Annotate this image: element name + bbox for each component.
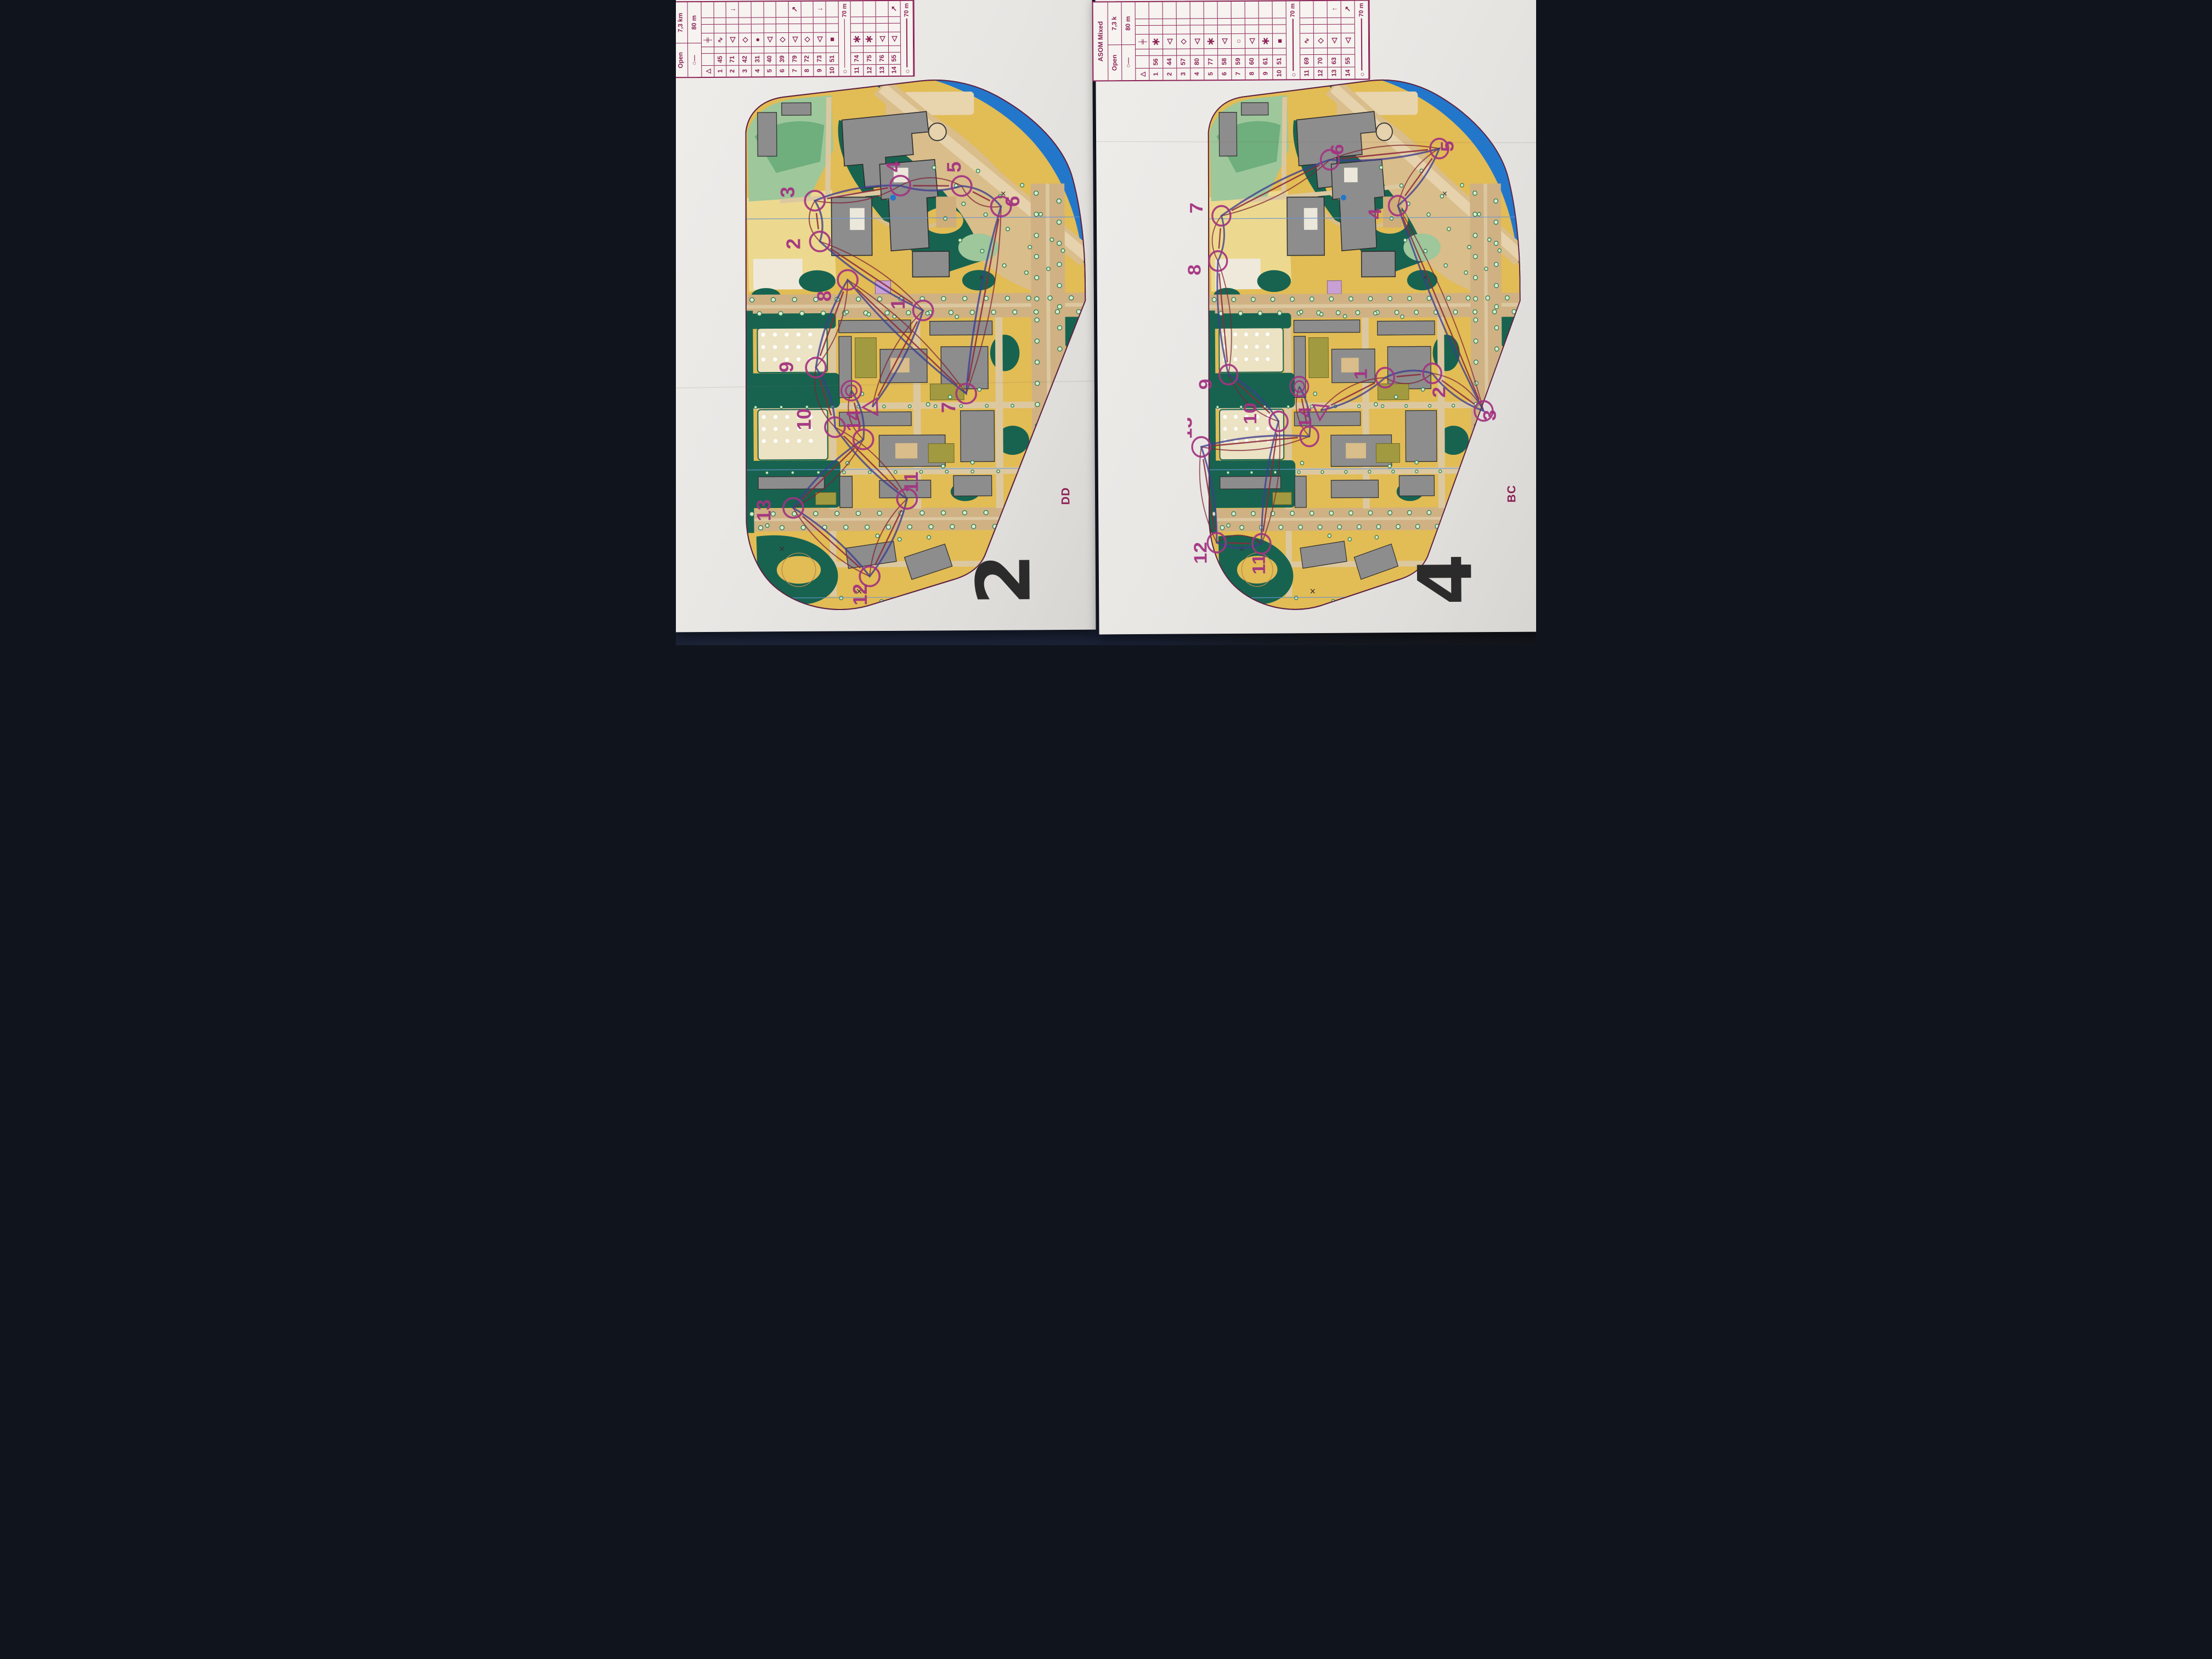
control-number-label: 13 [1185, 417, 1196, 439]
 [826, 46, 838, 53]
control-number-label: 14 [842, 409, 865, 431]
square-icon: ■ [1273, 33, 1286, 48]
taped-route-row: ○70 m [838, 1, 851, 76]
 [1204, 48, 1217, 55]
control-code: 74 [851, 52, 864, 64]
fence-icon: ╪ [1136, 34, 1149, 49]
 [714, 2, 726, 18]
control-code: 73 [814, 53, 826, 65]
 [726, 24, 738, 33]
diamond-icon: ◇ [1314, 33, 1327, 48]
description-row: 1455◁↗ [1341, 1, 1356, 79]
control-code: 56 [1149, 55, 1163, 67]
 [1190, 2, 1204, 18]
control-number: 5 [1204, 67, 1217, 80]
control-number-label: 4 [1365, 208, 1386, 219]
 [764, 24, 776, 32]
 [1149, 2, 1163, 19]
course-length: 7,3 km [676, 2, 687, 43]
description-row: 1376◁ [876, 1, 889, 76]
 [1190, 25, 1204, 34]
 [789, 24, 801, 32]
 [1177, 48, 1190, 55]
finish-route-row: ○70 m [901, 1, 914, 76]
control-number: 14 [889, 64, 901, 76]
control-code: 80 [1190, 55, 1204, 67]
 [726, 47, 738, 53]
 [888, 16, 900, 23]
description-row: 271◁↓ [726, 2, 740, 77]
 [776, 2, 788, 17]
control-number: 14 [1341, 66, 1355, 78]
triangle-icon: ◁ [726, 32, 738, 47]
 [1232, 2, 1245, 18]
 [752, 17, 764, 24]
arrow-down-icon: ↓ [814, 2, 826, 17]
control-number: 1 [714, 65, 726, 77]
description-row: 860◁ [1245, 2, 1260, 80]
control-number-label: 6 [1001, 196, 1024, 207]
control-number-label: 12 [849, 584, 871, 606]
description-row: 639◇ [776, 2, 789, 76]
 [1259, 48, 1272, 55]
control-number: 9 [1259, 67, 1272, 79]
 [1218, 48, 1231, 55]
control-code: 75 [864, 52, 876, 64]
control-number: 10 [1273, 67, 1286, 79]
 [739, 18, 751, 24]
 [876, 46, 888, 52]
course-length: 7,3 k [1108, 2, 1121, 44]
control-number-label: 9 [1196, 379, 1216, 390]
 [789, 46, 801, 53]
photo-of-orienteering-maps: 1234567891011121314 Open7,3 km○—80 m△╪14… [676, 0, 1536, 645]
 [1163, 49, 1176, 56]
route-distance: 70 m [1358, 3, 1365, 16]
triangle-icon: ◁ [814, 32, 826, 47]
control-code: 51 [1273, 55, 1286, 67]
 [1259, 18, 1272, 25]
control-number: 4 [1190, 67, 1204, 80]
 [1328, 24, 1341, 33]
control-number-label: 3 [776, 187, 799, 198]
description-row: 779◁↗ [788, 2, 802, 76]
 [1273, 24, 1286, 33]
 [1300, 18, 1313, 25]
control-number-label: 10 [793, 408, 815, 430]
 [1177, 2, 1190, 18]
control-description-sheet: Open7,3 km○—80 m△╪145∿271◁↓342◇431●540◁6… [676, 0, 915, 78]
description-row: 1174∗ [851, 1, 864, 76]
control-number-label: 5 [943, 161, 965, 172]
 [752, 24, 764, 32]
control-number: 2 [1163, 67, 1176, 80]
 [1328, 17, 1341, 24]
control-code: 61 [1259, 55, 1272, 67]
 [1218, 2, 1231, 18]
 [789, 17, 801, 24]
 [889, 46, 901, 52]
control-number: 2 [727, 65, 739, 77]
 [864, 16, 876, 23]
description-row: 357◇ [1177, 2, 1191, 80]
control-code: 70 [1314, 54, 1327, 66]
control-code: 76 [876, 52, 888, 64]
taped-route-row: ○70 m [1286, 1, 1301, 79]
control-code: 69 [1300, 54, 1313, 66]
orienteering-map-course-4: 1234567891011121314 [1185, 76, 1525, 624]
control-description-sheet: ASOM MixedOpen7,3 k○—80 m△╪156∗244◁357◇4… [1092, 0, 1370, 82]
triangle-icon: ◁ [1328, 33, 1341, 48]
event-title: ASOM Mixed [1093, 2, 1109, 80]
 [764, 47, 776, 53]
description-row: 1169∿ [1300, 1, 1314, 79]
control-number: 13 [876, 64, 888, 76]
description-row: △╪ [702, 2, 715, 77]
control-number-label: 2 [1429, 387, 1449, 398]
triangle-icon: ◁ [789, 32, 801, 47]
control-code: 57 [1177, 55, 1190, 67]
finish-route-row: ○70 m [1355, 1, 1369, 78]
control-number-label: 1 [887, 298, 909, 309]
arrow-upright-icon: ↗ [788, 2, 800, 17]
description-row: 1051■ [1273, 1, 1287, 79]
 [702, 2, 714, 18]
control-number-label: 9 [775, 362, 798, 373]
control-number-label: 7 [937, 402, 960, 413]
 [1163, 25, 1176, 34]
squiggle-icon: ∿ [714, 33, 726, 47]
class-name: Open [1108, 44, 1121, 80]
description-row: 973◁↓ [814, 2, 827, 76]
 [1328, 48, 1341, 55]
 [1341, 24, 1355, 33]
 [702, 18, 714, 24]
control-number-label: 13 [752, 499, 775, 521]
 [1273, 1, 1286, 18]
 [1136, 49, 1149, 56]
control-number-label: 14 [1295, 406, 1316, 428]
taped-route-icon: ○ [1289, 72, 1297, 77]
square-icon: ■ [826, 32, 838, 46]
star-icon: ∗ [1259, 33, 1272, 48]
 [739, 47, 751, 53]
course-climb: 80 m [688, 2, 701, 43]
arrow-down-icon: ↓ [726, 2, 738, 18]
control-number: 11 [1300, 67, 1313, 79]
control-number: 12 [1314, 67, 1327, 79]
control-number-label: 12 [1191, 542, 1211, 564]
taped-route-icon: ○ [840, 70, 849, 74]
 [864, 23, 876, 32]
course-climb: 80 m [1122, 2, 1135, 44]
 [1218, 18, 1231, 25]
finish-icon: ○ [1358, 72, 1366, 77]
control-code [702, 53, 714, 65]
orienteering-map-course-2: 1234567891011121314 [720, 76, 1091, 624]
 [1314, 48, 1327, 55]
 [1245, 48, 1259, 55]
description-row: 156∗ [1149, 2, 1164, 80]
 [1136, 2, 1149, 19]
triangle-icon: ◁ [764, 32, 776, 47]
control-code: 59 [1232, 55, 1245, 67]
triangle-icon: ◁ [1163, 34, 1176, 49]
 [726, 18, 738, 24]
control-code: 42 [739, 53, 751, 65]
 [1149, 25, 1163, 35]
 [1300, 24, 1313, 33]
diamond-icon: ◇ [802, 32, 814, 47]
triangle-icon: ◁ [1190, 34, 1204, 49]
 [1259, 24, 1272, 33]
 [1341, 17, 1355, 24]
 [1136, 25, 1149, 35]
control-code: 79 [789, 53, 801, 65]
 [826, 17, 838, 24]
route-distance: 70 m [841, 3, 848, 17]
control-code: 51 [826, 53, 838, 65]
description-row: 961∗ [1259, 1, 1273, 79]
control-code: 71 [727, 53, 739, 65]
map-sheet-course-4: 1234567891011121314 ASOM MixedOpen7,3 k○… [1095, 0, 1536, 634]
 [1314, 1, 1327, 18]
 [876, 1, 888, 16]
control-number-label: 11 [900, 472, 922, 493]
 [1163, 18, 1176, 25]
control-number: 13 [1328, 66, 1341, 78]
triangle-icon: ◁ [1218, 33, 1231, 48]
control-number: 5 [764, 65, 776, 77]
control-code: 31 [752, 53, 764, 65]
control-number: 3 [739, 65, 751, 77]
 [739, 24, 751, 32]
control-code [1136, 55, 1149, 67]
control-number: △ [1136, 68, 1149, 80]
arrow-upright-icon: ↗ [888, 1, 900, 16]
description-row: 1270◇ [1314, 1, 1328, 79]
 [1245, 2, 1259, 18]
start-circle-icon: ○— [688, 43, 701, 77]
 [1149, 49, 1163, 56]
 [826, 1, 838, 16]
star-icon: ∗ [864, 32, 876, 46]
control-code: 39 [776, 53, 788, 65]
 [1177, 18, 1190, 25]
control-number-label: 1 [1351, 369, 1372, 380]
description-row: 577∗ [1204, 2, 1218, 80]
start-circle-icon: ○— [1122, 44, 1135, 80]
course-label: BC [1505, 485, 1519, 503]
control-code: 77 [1204, 55, 1217, 67]
diamond-icon: ◇ [739, 32, 751, 47]
arrow-up-icon: ↑ [1328, 1, 1341, 18]
diamond-icon: ◇ [1177, 34, 1190, 49]
control-number-label: 3 [1480, 410, 1500, 421]
 [764, 2, 776, 17]
 [1177, 25, 1190, 34]
 [814, 17, 826, 24]
 [801, 2, 813, 17]
control-number-label: 10 [1240, 403, 1261, 425]
 [1136, 18, 1149, 25]
 [1204, 18, 1217, 25]
control-code: 63 [1328, 54, 1341, 66]
 [1300, 1, 1313, 18]
squiggle-icon: ∿ [1300, 33, 1313, 48]
triangle-icon: ◁ [888, 32, 900, 46]
 [851, 16, 863, 23]
description-row: 1051■ [826, 1, 839, 76]
control-code: 40 [764, 53, 776, 65]
control-number-label: 8 [812, 291, 835, 302]
control-number: 1 [1149, 67, 1163, 80]
description-row: 658◁ [1218, 2, 1232, 80]
control-number: 11 [851, 64, 864, 76]
 [776, 17, 788, 24]
 [714, 24, 726, 33]
control-code: 44 [1163, 55, 1176, 67]
 [764, 17, 776, 24]
 [752, 47, 764, 53]
finish-icon: ○ [903, 69, 911, 74]
 [714, 47, 726, 53]
 [1245, 25, 1259, 34]
 [1273, 48, 1286, 55]
 [1204, 2, 1217, 18]
control-number: 8 [1245, 67, 1259, 79]
control-number-label: 11 [1249, 554, 1269, 574]
 [714, 18, 726, 24]
 [864, 46, 876, 52]
 [814, 24, 826, 32]
control-code: 55 [1341, 54, 1355, 66]
 [776, 24, 788, 32]
control-number: 10 [826, 64, 838, 76]
description-row: 1363◁↑ [1328, 1, 1342, 79]
 [801, 24, 813, 32]
 [826, 23, 838, 32]
course-number: 2 [967, 554, 1041, 606]
control-number: 12 [864, 64, 876, 76]
triangle-icon: ◁ [1341, 33, 1355, 48]
 [851, 46, 863, 53]
leg-line [913, 185, 949, 186]
control-number-label: 8 [1185, 264, 1205, 275]
 [776, 46, 788, 53]
control-number: 8 [802, 64, 814, 76]
control-number: △ [702, 65, 714, 77]
description-row: 431● [751, 2, 764, 76]
 [801, 17, 813, 24]
 [851, 23, 863, 32]
 [1232, 48, 1245, 55]
 [1341, 48, 1355, 55]
diamond-icon: ◇ [776, 32, 788, 47]
route-distance: 70 m [904, 3, 910, 17]
triangle-icon: ◁ [1245, 33, 1259, 48]
description-row: 1455◁↗ [888, 1, 901, 76]
circle-icon: ○ [1232, 33, 1245, 48]
control-code: 45 [714, 53, 726, 65]
control-code: 55 [889, 52, 901, 64]
 [1314, 24, 1327, 33]
 [1204, 25, 1217, 34]
 [876, 23, 888, 32]
control-code: 58 [1218, 55, 1231, 67]
course-number: 4 [1408, 554, 1483, 606]
description-row: 1275∗ [864, 1, 877, 76]
dot-icon: ● [752, 32, 764, 47]
description-row: 342◇ [739, 2, 752, 76]
 [876, 16, 888, 23]
 [1232, 25, 1245, 34]
 [1149, 18, 1163, 25]
control-code: 60 [1245, 55, 1259, 67]
 [1245, 18, 1259, 25]
control-number: 6 [1218, 67, 1231, 80]
map-sheet-course-2: 1234567891011121314 Open7,3 km○—80 m△╪14… [676, 0, 1096, 632]
control-number: 4 [752, 65, 764, 77]
control-number-label: 2 [782, 238, 804, 249]
star-icon: ∗ [1149, 34, 1163, 49]
 [1259, 2, 1272, 18]
leg-line [1228, 543, 1250, 544]
description-row: 480◁ [1190, 2, 1205, 80]
 [739, 2, 751, 17]
star-icon: ∗ [851, 32, 863, 46]
triangle-icon: ◁ [876, 32, 888, 46]
 [702, 24, 714, 33]
control-number: 3 [1177, 67, 1190, 80]
arrow-upright-icon: ↗ [1341, 1, 1355, 18]
 [888, 23, 900, 32]
 [864, 1, 876, 16]
course-label: DD [1059, 487, 1073, 505]
description-row: 244◁ [1163, 2, 1177, 80]
 [851, 1, 863, 16]
description-row: 872◇ [801, 2, 814, 76]
 [1163, 2, 1176, 19]
 [1218, 25, 1231, 34]
star8-icon: ∗ [1204, 34, 1217, 49]
control-code: 72 [802, 53, 814, 65]
control-number: 7 [789, 65, 801, 77]
 [702, 47, 714, 53]
description-row: 759○ [1232, 2, 1246, 80]
control-number: 9 [814, 64, 826, 76]
control-number-label: 5 [1437, 141, 1458, 152]
 [1273, 18, 1286, 25]
 [751, 2, 763, 17]
description-row: 145∿ [714, 2, 727, 77]
 [1314, 17, 1327, 24]
control-number: 6 [776, 65, 788, 77]
class-name: Open [676, 43, 687, 77]
description-row: 540◁ [764, 2, 777, 76]
description-row: △╪ [1136, 2, 1150, 80]
control-number-label: 4 [882, 161, 905, 172]
 [1190, 18, 1204, 25]
control-number: 7 [1232, 67, 1245, 80]
control-number-label: 6 [1328, 144, 1348, 155]
 [1232, 18, 1245, 25]
 [1190, 48, 1204, 55]
fence-icon: ╪ [702, 33, 714, 47]
 [802, 46, 814, 53]
control-number-label: 7 [1187, 202, 1207, 213]
 [814, 46, 826, 53]
